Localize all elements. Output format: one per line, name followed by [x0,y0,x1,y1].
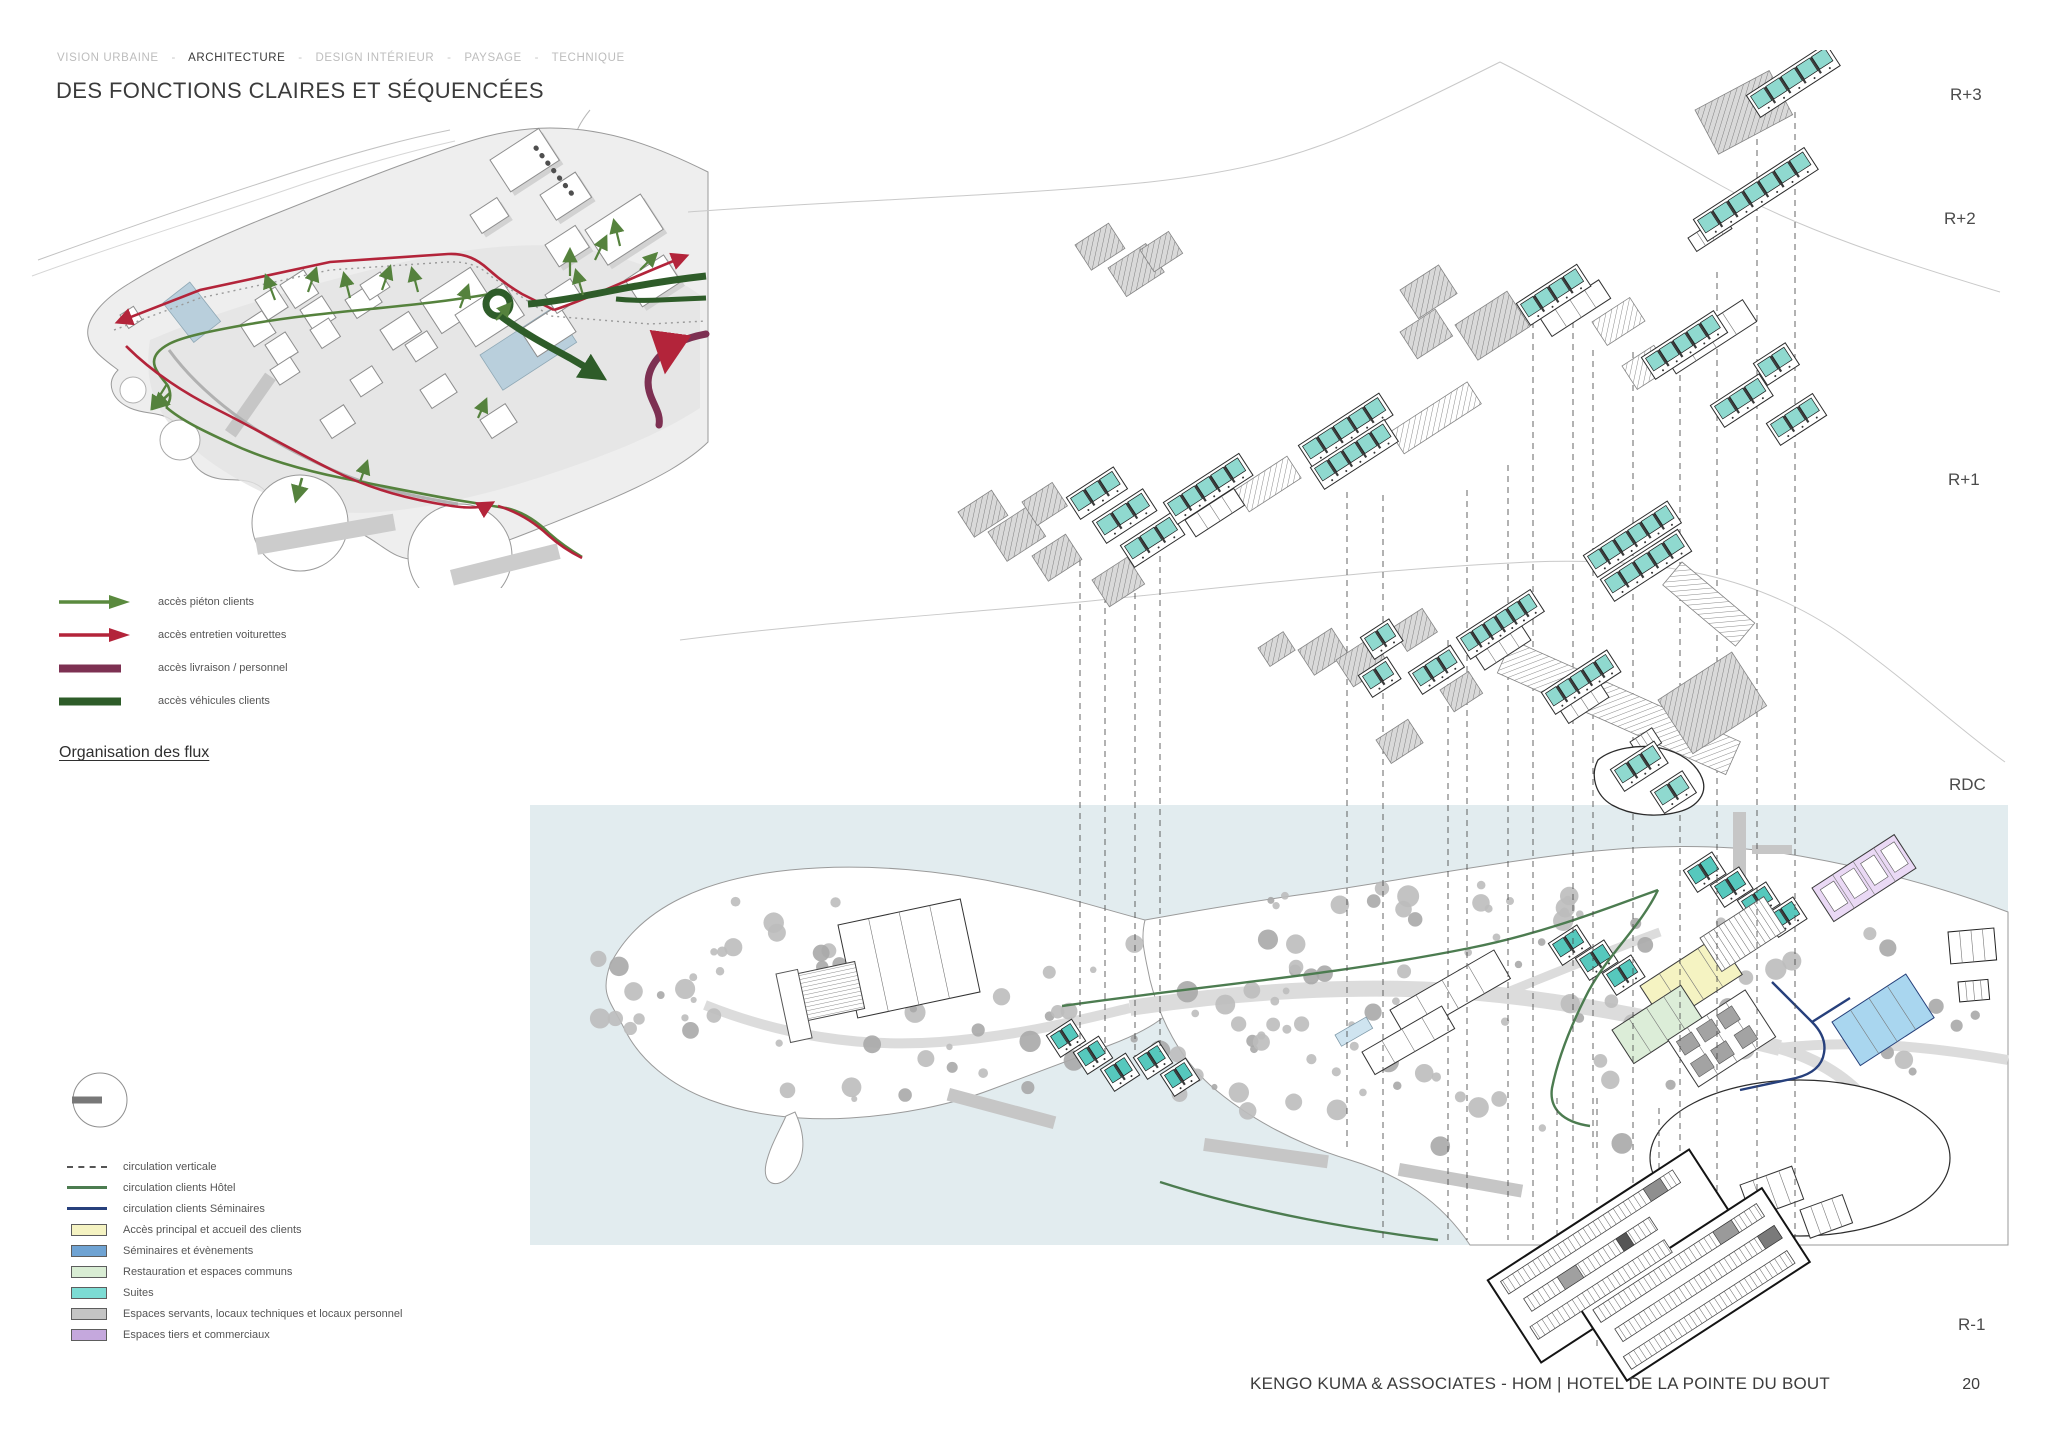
level-label-r3: R+3 [1950,85,1982,105]
legend-label: Espaces tiers et commerciaux [123,1329,270,1341]
legend-row: accès livraison / personnel [57,651,288,684]
maroon-bar-swatch [57,660,132,676]
nav-item-design-interieur[interactable]: DESIGN INTÉRIEUR [315,52,434,64]
lightgreen-box-swatch [71,1266,107,1278]
yellow-box-swatch [71,1224,107,1236]
exploded-axonometric-figure [500,50,2048,1410]
legend-label: circulation verticale [123,1161,217,1173]
page-title: DES FONCTIONS CLAIRES ET SÉQUENCÉES [56,78,544,104]
legend-label: accès livraison / personnel [158,662,288,674]
nav-separator: - [298,52,302,64]
legend-row: Suites [57,1282,402,1303]
compass-icon [40,1070,140,1132]
nav-item-architecture[interactable]: ARCHITECTURE [188,52,285,64]
legend-label: accès entretien voiturettes [158,629,286,641]
legend-row: circulation clients Hôtel [57,1177,402,1198]
legend-row: Restauration et espaces communs [57,1261,402,1282]
legend-label: accès véhicules clients [158,695,270,707]
teal-box-swatch [71,1287,107,1299]
legend-row: accès entretien voiturettes [57,618,288,651]
legend-row: accès piéton clients [57,585,288,618]
legend-label: circulation clients Hôtel [123,1182,236,1194]
level-label-r2: R+2 [1944,209,1976,229]
legend-row: Espaces servants, locaux techniques et l… [57,1303,402,1324]
green-line-swatch [67,1186,107,1189]
level-label-r1: R+1 [1948,470,1980,490]
legend-row: circulation clients Séminaires [57,1198,402,1219]
legend-label: Restauration et espaces communs [123,1266,292,1278]
page-number: 20 [1962,1376,1980,1394]
level-label-rdc: RDC [1949,775,1986,795]
navy-line-swatch [67,1207,107,1210]
legend-row: circulation verticale [57,1156,402,1177]
legend-label: Séminaires et évènements [123,1245,253,1257]
legend-row: accès véhicules clients [57,684,288,717]
legend-row: Séminaires et évènements [57,1240,402,1261]
purple-box-swatch [71,1329,107,1341]
red-arrow-swatch [57,627,132,643]
legend-row: Espaces tiers et commerciaux [57,1324,402,1345]
gray-box-swatch [71,1308,107,1320]
footer-credit: KENGO KUMA & ASSOCIATES - HOM | HOTEL DE… [1250,1374,1830,1394]
legend-label: Suites [123,1287,154,1299]
level-label-r-1: R-1 [1958,1315,1985,1335]
legend-label: accès piéton clients [158,596,254,608]
legend-label: Espaces servants, locaux techniques et l… [123,1308,402,1320]
legend-label: Accès principal et accueil des clients [123,1224,302,1236]
presentation-slide: VISION URBAINE - ARCHITECTURE - DESIGN I… [0,0,2048,1448]
legend-row: Accès principal et accueil des clients [57,1219,402,1240]
blue-box-swatch [71,1245,107,1257]
nav-separator: - [172,52,176,64]
nav-separator: - [447,52,451,64]
floor-plates [958,50,1840,815]
zoning-legend: circulation verticale circulation client… [57,1156,402,1345]
flow-legend: accès piéton clients accès entretien voi… [57,585,288,717]
legend-label: circulation clients Séminaires [123,1203,265,1215]
dashed-line-swatch [67,1166,107,1168]
rdc-plan [530,805,2008,1245]
green-arrow-swatch [57,594,132,610]
darkgreen-bar-swatch [57,693,132,709]
section-label: Organisation des flux [59,744,209,762]
nav-item-vision-urbaine[interactable]: VISION URBAINE [57,52,159,64]
